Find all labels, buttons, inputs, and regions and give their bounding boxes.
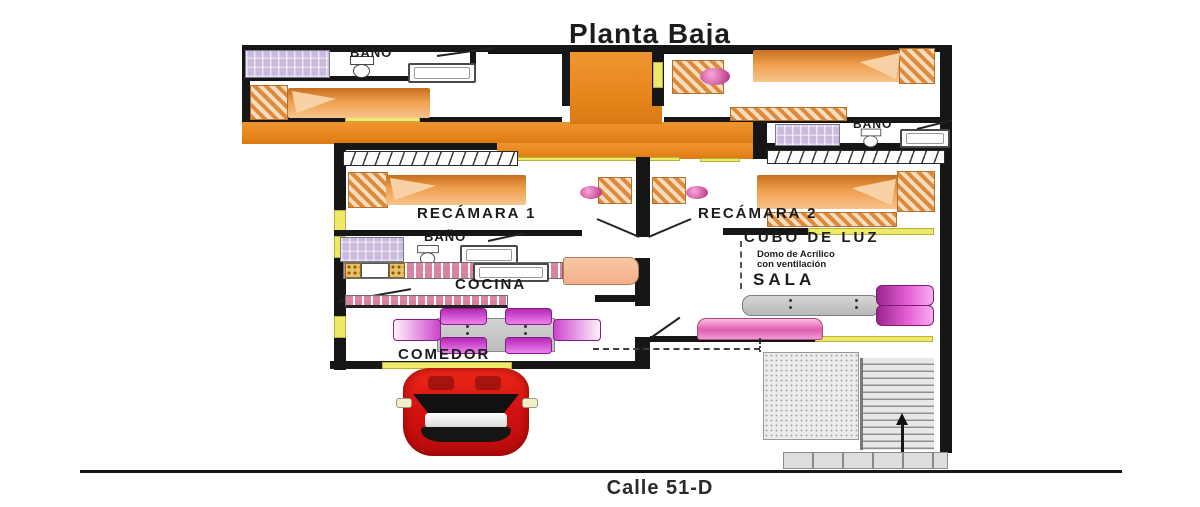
wall-rec1-top <box>334 143 497 150</box>
wall-bath2-left <box>753 121 767 159</box>
dining-chair <box>553 319 601 341</box>
sofa-bottom <box>697 318 823 340</box>
coffee-table <box>742 295 880 316</box>
door-swing-line <box>651 317 680 338</box>
dining-chair <box>505 337 552 354</box>
door-marker <box>334 316 346 338</box>
car-vent <box>475 376 501 390</box>
bed-headboard <box>250 85 288 120</box>
wall-above-hall-2 <box>420 117 562 122</box>
car <box>403 368 529 456</box>
car-vent <box>428 376 454 390</box>
refrigerator <box>563 257 639 285</box>
room-label-bano-top-left: BAÑO <box>350 45 392 60</box>
kitchen-counter-bottom <box>345 295 508 308</box>
leader-line <box>648 218 691 238</box>
car-mirror <box>522 398 538 408</box>
stove <box>361 263 389 278</box>
staircase <box>860 358 934 450</box>
table-detail <box>789 299 792 302</box>
bed-headboard <box>897 171 935 212</box>
sink-icon <box>900 129 950 148</box>
room-label-bano-right: BAÑO <box>853 117 892 131</box>
dresser-top-right <box>730 107 847 121</box>
street-label: Calle 51-D <box>555 477 765 500</box>
room-label-bano-middle: BAÑO <box>424 229 466 244</box>
room-label-recamara-2: RECÁMARA 2 <box>698 205 817 222</box>
dining-chair <box>393 319 441 341</box>
entry-hall-stem <box>570 52 662 124</box>
table-detail <box>524 325 527 328</box>
desk-object <box>686 186 708 199</box>
desk-object <box>700 68 730 85</box>
dining-chair <box>505 308 552 325</box>
room-label-cubo: CUBO DE LUZ <box>744 229 880 246</box>
car-mirror <box>396 398 412 408</box>
wall-bedroom-divider <box>636 157 650 237</box>
carport-dashed-line <box>593 348 760 350</box>
bed-headboard <box>899 48 935 84</box>
closet-recamara-1 <box>343 151 518 166</box>
shower-top-left <box>245 50 330 78</box>
door-marker <box>334 210 346 232</box>
hallway-band <box>242 122 755 144</box>
wall-right <box>940 45 952 453</box>
leader-line <box>597 218 640 238</box>
stove-burners <box>345 263 361 278</box>
bed-headboard <box>348 172 388 208</box>
cubo-dashed-border <box>740 241 742 289</box>
car-rear-window <box>421 427 511 442</box>
desk-object <box>580 186 602 199</box>
shower-right <box>775 124 840 146</box>
door-marker <box>653 62 663 88</box>
room-label-comedor: COMEDOR <box>398 346 490 363</box>
dining-chair <box>440 308 487 325</box>
car-roof <box>425 413 507 428</box>
door-marker <box>815 336 933 342</box>
stairs-arrow-head <box>896 413 908 425</box>
door-marker <box>700 158 740 162</box>
carport-dotted-line <box>759 338 761 352</box>
shower-middle <box>340 237 404 262</box>
door-marker <box>503 157 680 161</box>
sofa-cushion <box>876 285 934 306</box>
car-windshield <box>413 394 519 414</box>
cubo-note-line2: con ventilación <box>757 259 826 270</box>
room-label-cocina: COCINA <box>455 276 526 293</box>
table-detail <box>855 299 858 302</box>
stove-burners <box>389 263 405 278</box>
table-detail <box>466 325 469 328</box>
floor-plan: Planta Baja BAÑO <box>0 0 1200 507</box>
room-label-sala: SALA <box>753 270 815 290</box>
wall-stem-left <box>562 52 570 106</box>
entry-steps <box>783 452 948 469</box>
patio-gravel <box>763 352 859 440</box>
closet-recamara-2 <box>767 150 945 164</box>
street-line <box>80 470 1122 473</box>
chair-recamara-1 <box>598 177 632 204</box>
sink-icon <box>408 63 476 83</box>
wall-kitchen-stub <box>595 295 637 302</box>
toilet-icon <box>858 129 884 148</box>
room-label-recamara-1: RECÁMARA 1 <box>417 205 536 222</box>
chair-recamara-2 <box>652 177 686 204</box>
sofa-cushion <box>876 305 934 326</box>
